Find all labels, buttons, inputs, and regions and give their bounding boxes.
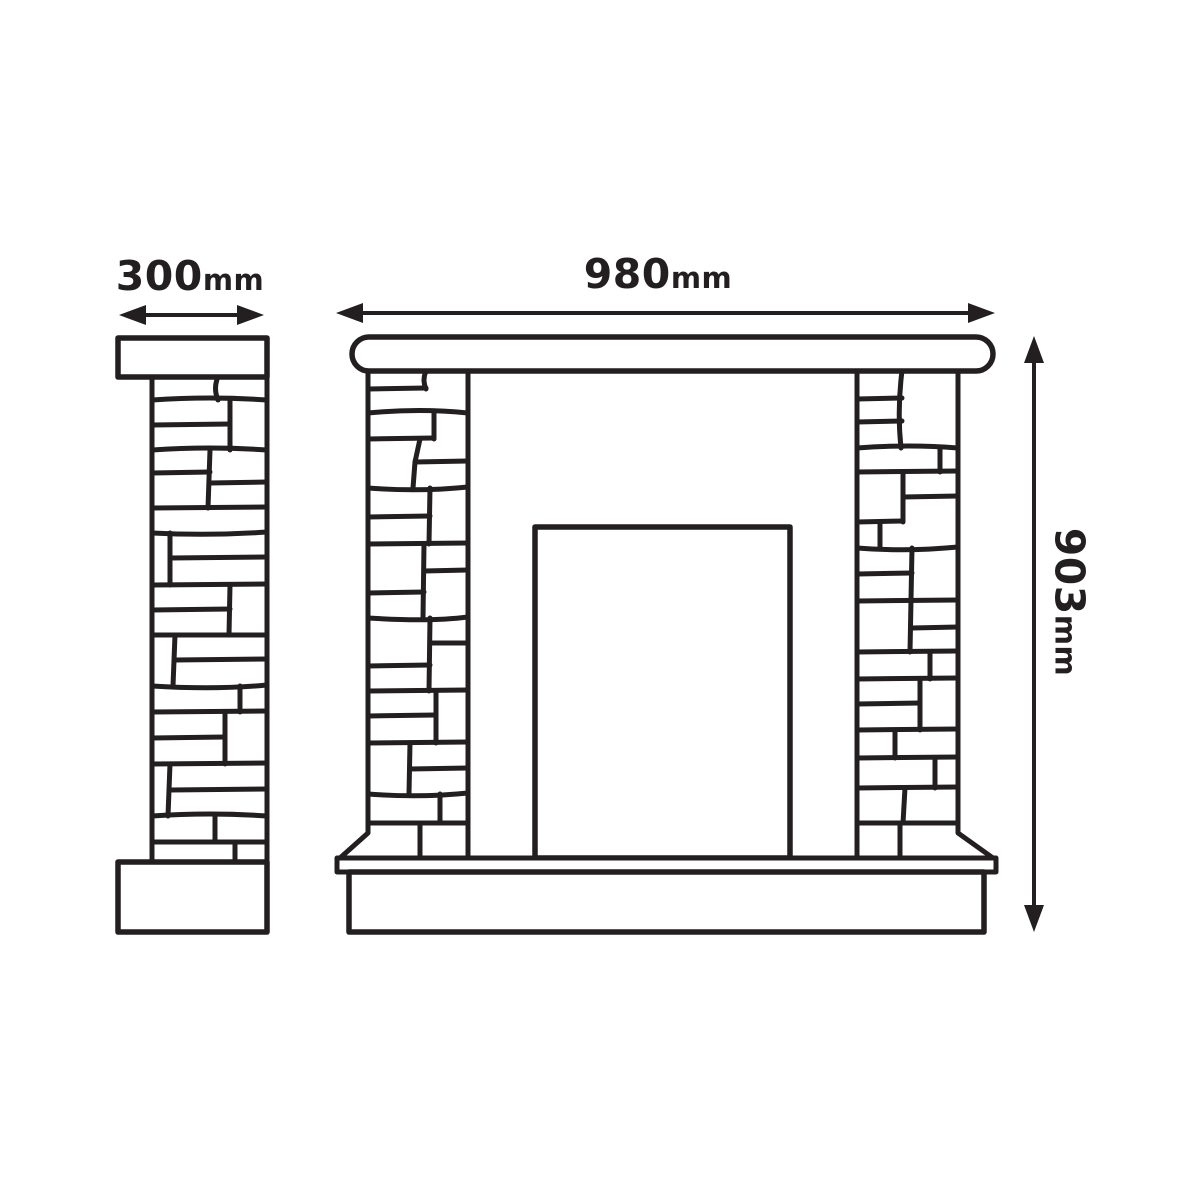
side-width-arrow-icon (119, 305, 264, 325)
front-width-unit: mm (671, 261, 732, 295)
firebox-opening (535, 527, 790, 858)
side-bottom-cap (118, 862, 267, 932)
right-pillar-stones (857, 371, 958, 858)
left-pillar-stones (368, 371, 468, 858)
diagram-svg (0, 0, 1200, 1200)
side-view (118, 338, 267, 932)
front-height-value: 903 (1046, 528, 1094, 615)
front-width-arrow-icon (336, 303, 995, 323)
left-pillar-outline (340, 371, 468, 858)
side-width-unit: mm (203, 263, 264, 297)
side-top-cap (118, 338, 267, 377)
front-view (337, 337, 996, 932)
mantel-shelf (352, 337, 993, 371)
side-width-label: 300mm (116, 256, 265, 297)
fireplace-dimension-diagram: 300mm 980mm 903mm (0, 0, 1200, 1200)
front-height-arrow-icon (1024, 336, 1044, 932)
side-width-value: 300 (116, 252, 203, 300)
front-height-unit: mm (1049, 615, 1083, 676)
front-height-label: 903mm (1049, 528, 1090, 677)
plinth-base (349, 872, 984, 932)
front-width-value: 980 (584, 250, 671, 298)
front-width-label: 980mm (584, 254, 733, 295)
side-column-stones (152, 377, 267, 862)
